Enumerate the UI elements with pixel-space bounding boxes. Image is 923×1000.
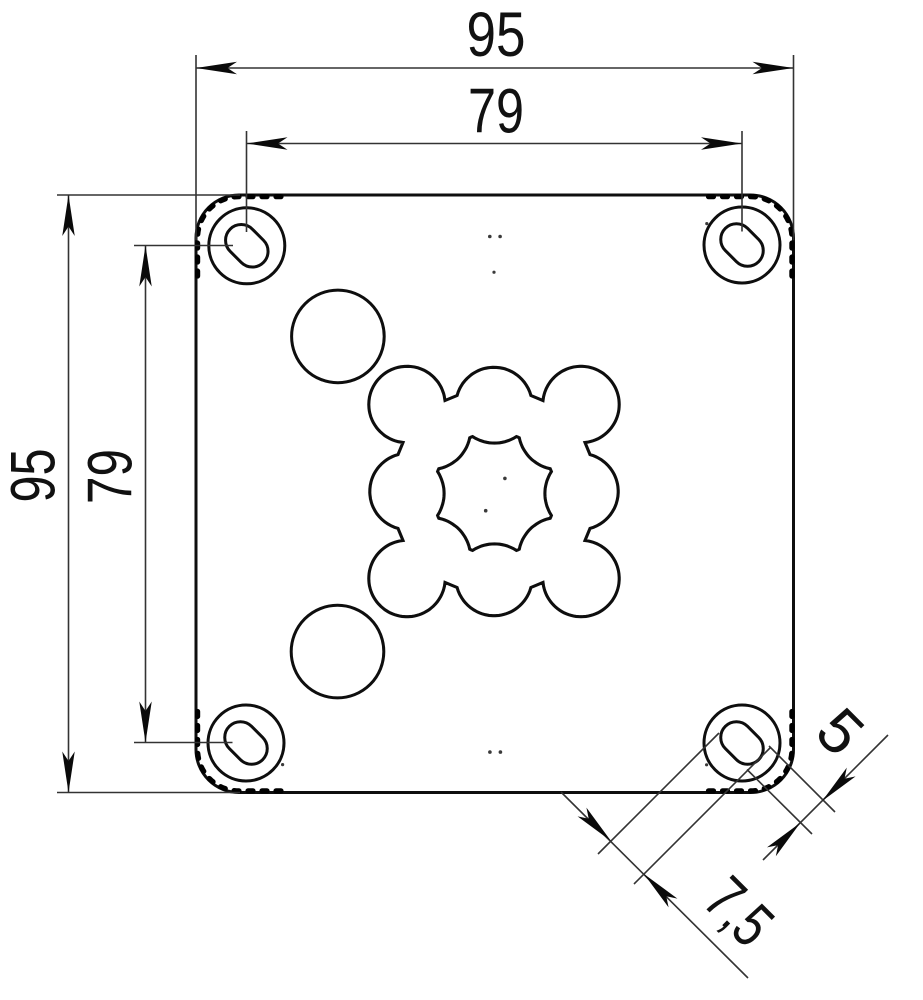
svg-text:79: 79 [76, 449, 146, 504]
svg-text:95: 95 [0, 449, 69, 503]
svg-text:95: 95 [467, 0, 526, 70]
svg-text:79: 79 [468, 77, 524, 147]
